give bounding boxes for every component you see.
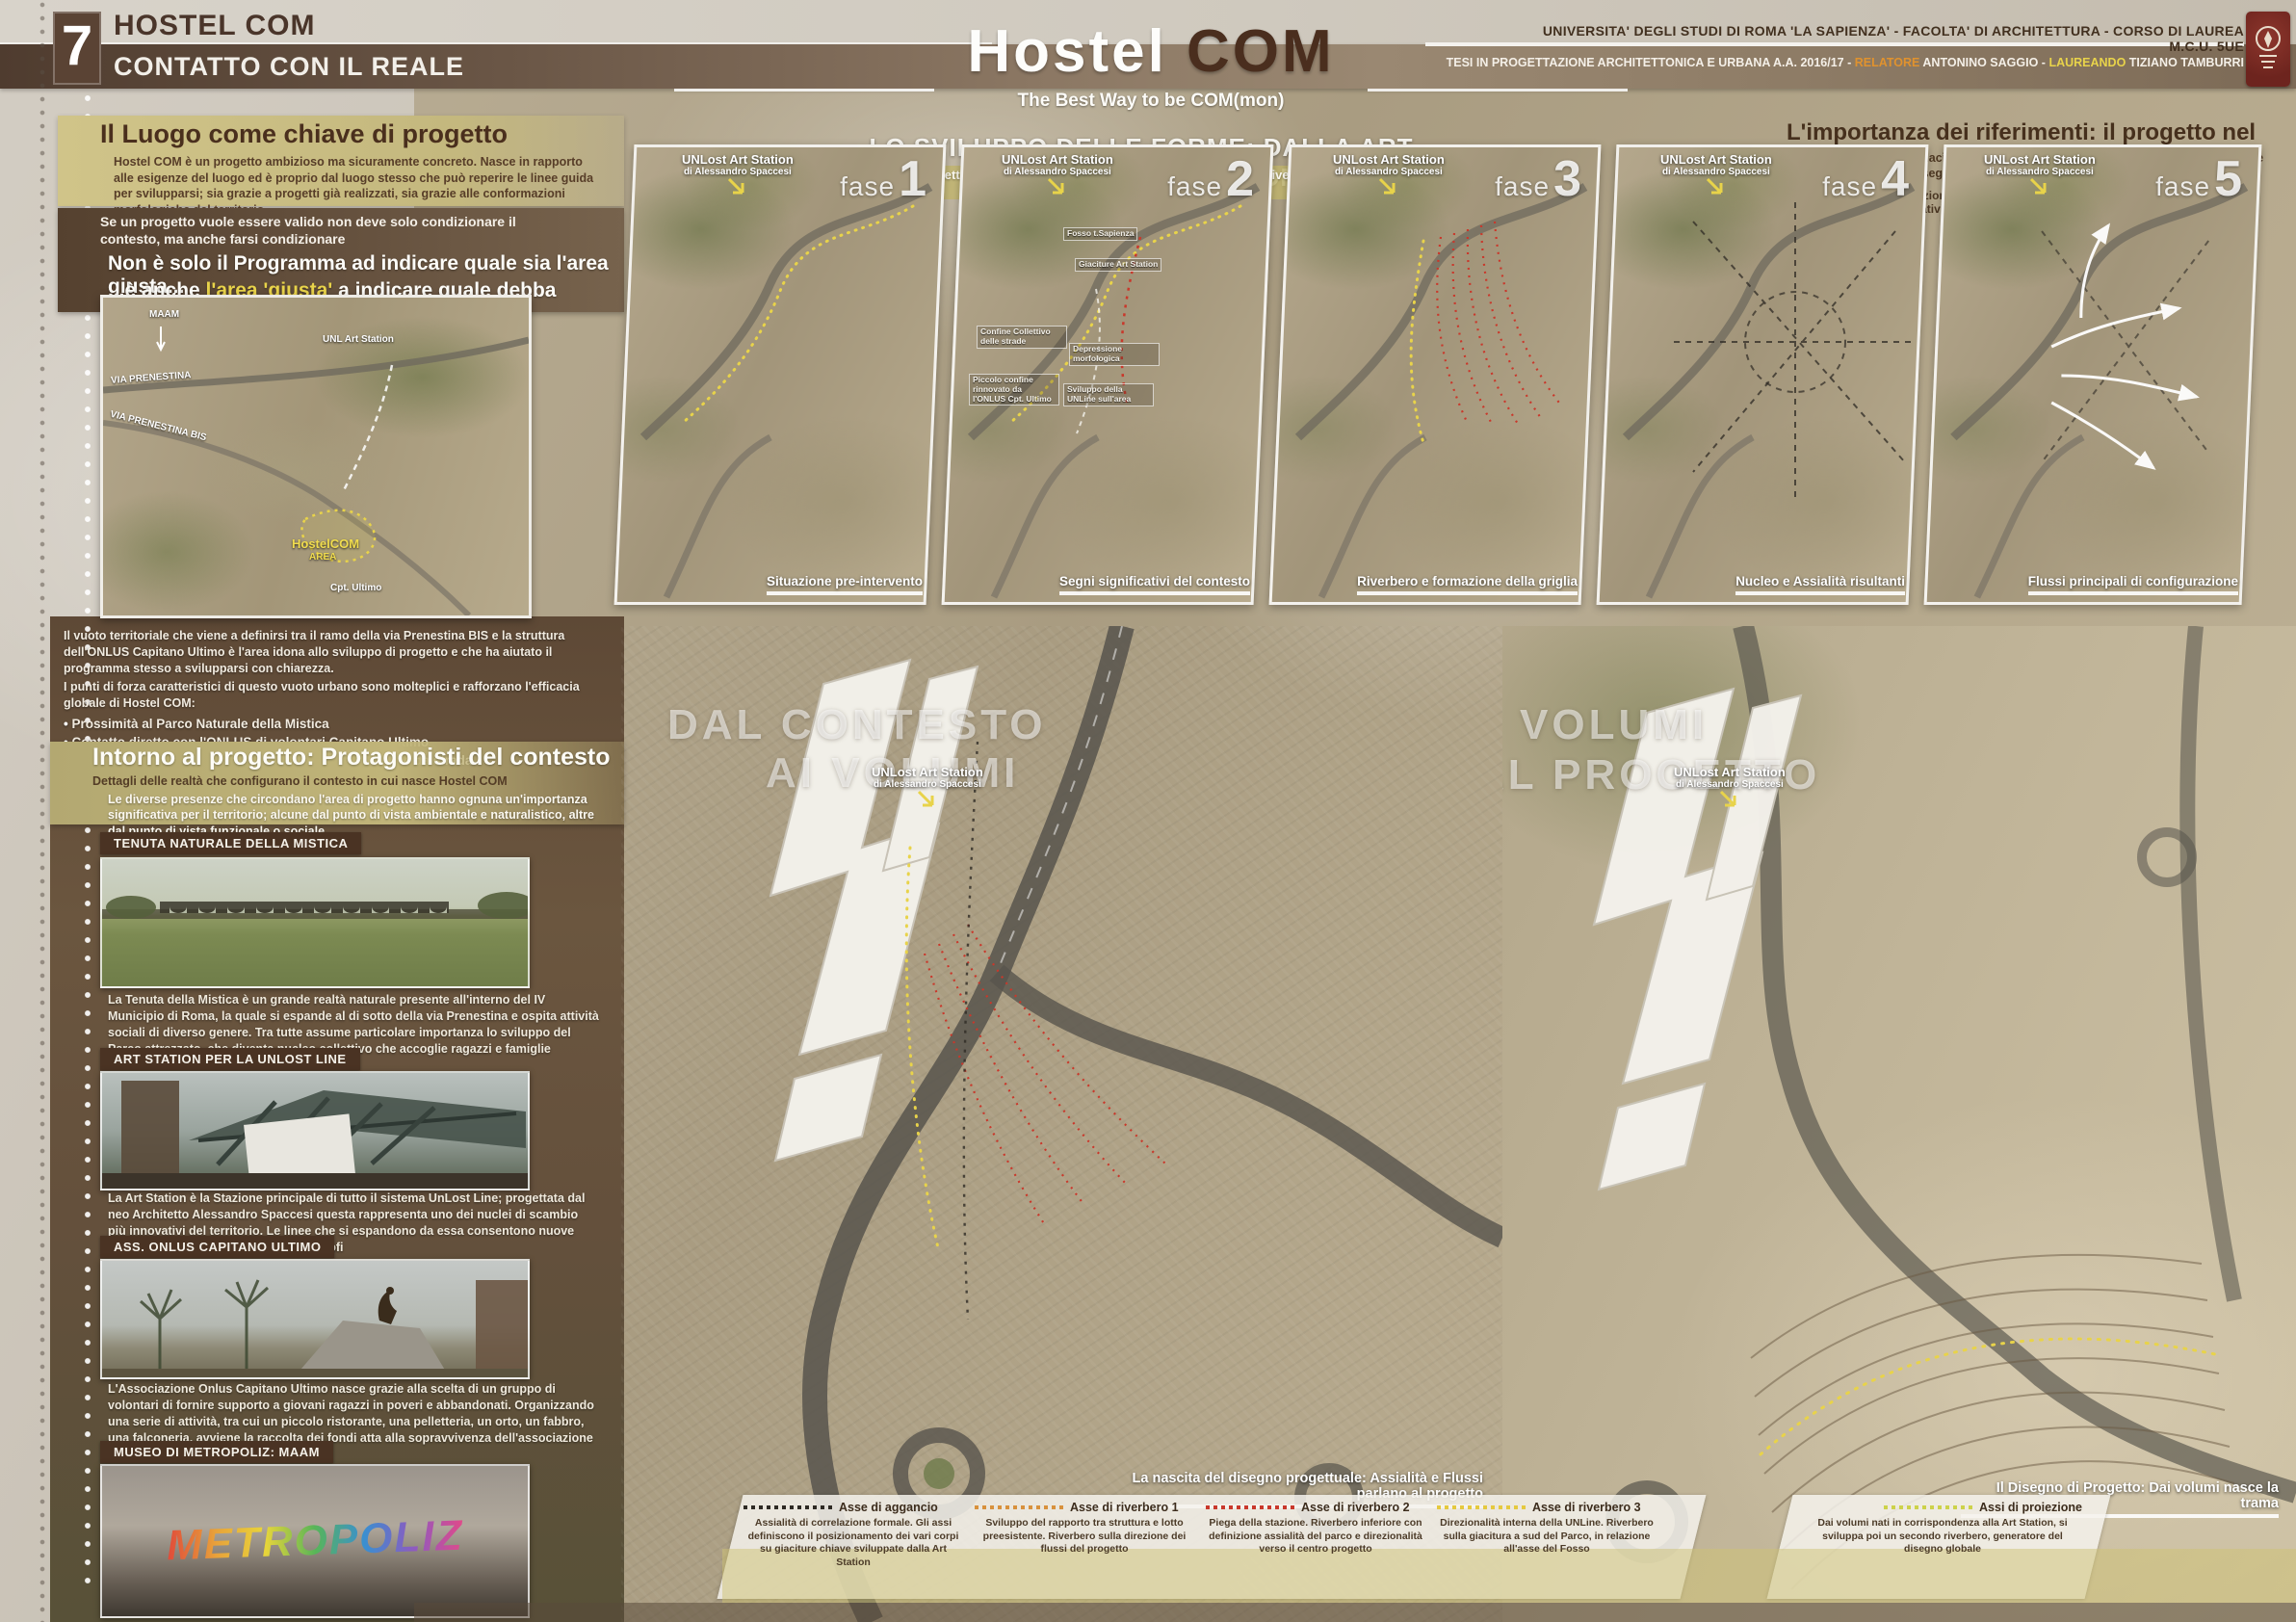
station-tag-line2: di Alessandro Spaccesi (1333, 167, 1445, 177)
legend-swatch-proiezione (1884, 1505, 1972, 1509)
vuoto-bullet: Prossimità al Parco Naturale della Misti… (64, 717, 329, 731)
bottom-dark-bar (414, 1603, 2296, 1622)
station-tag-line2: di Alessandro Spaccesi (872, 779, 983, 790)
ghost-text-dai-volumi: DAI VOLUMI (1502, 701, 1708, 749)
phase-5-caption: Flussi principali di configurazione (2028, 574, 2238, 595)
yellow-pointer-icon (915, 790, 940, 815)
station-tag-line2: di Alessandro Spaccesi (1984, 167, 2096, 177)
brand-title-white: Hostel (967, 18, 1166, 85)
card-maam-header: MUSEO DI METROPOLIZ: MAAM (100, 1441, 333, 1463)
site-context-map: MAAM UNL Art Station VIA PRENESTINA VIA … (100, 295, 532, 618)
card-mistica-header: TENUTA NATURALE DELLA MISTICA (100, 832, 361, 854)
relatore-label: RELATORE (1855, 56, 1920, 69)
intorno-heading: Intorno al progetto: Protagonisti del co… (92, 744, 611, 772)
bigmap-left-station-tag: UNLost Art Station di Alessandro Spacces… (872, 765, 983, 820)
phase-card-4: fase4 UNLost Art Station di Alessandro S… (1606, 144, 1918, 605)
phase-5-fase-label: fase5 (2155, 150, 2242, 208)
fase-word: fase (1495, 171, 1550, 201)
thesis-prefix: TESI IN PROGETTAZIONE ARCHITETTONICA E U… (1447, 56, 1844, 69)
station-tag-line1: UNLost Art Station (1660, 152, 1772, 167)
phase-1-fase-label: fase1 (840, 150, 926, 208)
station-tag-line2: di Alessandro Spaccesi (1674, 779, 1786, 790)
bigmap-context-to-volumes: DAL CONTESTO AI VOLUMI UNLost Art Statio… (621, 626, 1502, 1622)
legend-swatch-riverbero-3 (1437, 1505, 1526, 1509)
card-artstation-header: ART STATION PER LA UNLOST LINE (100, 1048, 360, 1070)
maam-graffiti-text: METROPOLIZ (166, 1512, 464, 1571)
phase-2-fase-label: fase2 (1167, 150, 1254, 208)
legend-title: Asse di riverbero 3 (1532, 1501, 1641, 1514)
phase-3-roads (1279, 144, 1591, 605)
phase-card-5: fase5 UNLost Art Station di Alessandro S… (1934, 144, 2252, 605)
fase-number: 2 (1226, 151, 1254, 207)
thesis-credits: TESI IN PROGETTAZIONE ARCHITETTONICA E U… (1445, 56, 2244, 69)
legend-item-riverbero-2: Asse di riverbero 2 Piega della stazione… (1206, 1501, 1425, 1557)
legend-desc: Dai volumi nati in corrispondenza alla A… (1803, 1517, 2082, 1557)
phase-2-note-confine: Confine Collettivo delle strade (977, 326, 1067, 349)
fase-number: 3 (1553, 151, 1581, 207)
fase-word: fase (840, 171, 895, 201)
mistica-landscape-icon (102, 859, 528, 986)
site-map-label-cpt-ultimo: Cpt. Ultimo (330, 583, 381, 593)
legend-desc: Assialità di correlazione formale. Gli a… (744, 1517, 963, 1570)
phase-card-2: fase2 UNLost Art Station di Alessandro S… (952, 144, 1264, 605)
sapienza-logo (2246, 12, 2290, 87)
card-maam-photo: METROPOLIZ (100, 1464, 530, 1618)
vuoto-paragraph-2: I punti di forza caratteristici di quest… (64, 679, 618, 712)
phase-card-1: fase1 UNLost Art Station di Alessandro S… (624, 144, 936, 605)
ghost-text-dal-contesto: DAL CONTESTO (667, 701, 1047, 749)
phase-2-note-fosso: Fosso t.Sapienza (1063, 227, 1137, 241)
site-map-label-hostelcom: HostelCOM (292, 536, 359, 551)
legend-swatch-riverbero-1 (975, 1505, 1063, 1509)
site-map-roads (103, 298, 529, 615)
phase-3-caption: Riverbero e formazione della griglia (1357, 574, 1578, 595)
legend-title: Asse di riverbero 2 (1301, 1501, 1410, 1514)
luogo-heading: Il Luogo come chiave di progetto (100, 119, 508, 149)
legend-desc: Piega della stazione. Riverbero inferior… (1206, 1517, 1425, 1557)
yellow-pointer-icon (1376, 177, 1401, 202)
phase-2-caption: Segni significativi del contesto (1059, 574, 1250, 595)
fase-word: fase (2155, 171, 2210, 201)
card-artstation-photo (100, 1071, 530, 1190)
station-tag-line1: UNLost Art Station (682, 152, 794, 167)
claim-intro: Se un progetto vuole essere valido non d… (100, 214, 553, 248)
legend-title: Asse di riverbero 1 (1070, 1501, 1179, 1514)
station-tag-line1: UNLost Art Station (1002, 152, 1113, 167)
legend-title: Assi di proiezione (1979, 1501, 2082, 1514)
legend-desc: Direzionalità interna della UNLine. Rive… (1437, 1517, 1657, 1557)
intorno-subtitle: Dettagli delle realtà che configurano il… (92, 774, 508, 788)
phase-1-station-tag: UNLost Art Station di Alessandro Spacces… (682, 152, 794, 207)
legend-title: Asse di aggancio (839, 1501, 938, 1514)
panel-number: 7 (53, 12, 101, 85)
site-map-label-area: AREA (309, 552, 336, 562)
yellow-pointer-icon (2027, 177, 2052, 202)
sapienza-emblem-icon (2252, 19, 2284, 79)
station-tag-line1: UNLost Art Station (872, 765, 983, 779)
phase-5-roads (1934, 144, 2252, 605)
tagline-rule-left (674, 89, 934, 92)
legend-item-riverbero-1: Asse di riverbero 1 Sviluppo del rapport… (975, 1501, 1194, 1557)
phase-4-roads (1606, 144, 1918, 605)
yellow-pointer-icon (725, 177, 750, 202)
yellow-pointer-icon (1704, 177, 1729, 202)
yellow-pointer-icon (1717, 790, 1742, 815)
station-tag-line2: di Alessandro Spaccesi (1002, 167, 1113, 177)
phase-card-3: fase3 UNLost Art Station di Alessandro S… (1279, 144, 1591, 605)
fase-number: 4 (1881, 151, 1909, 207)
station-tag-line1: UNLost Art Station (1674, 765, 1786, 779)
station-tag-line2: di Alessandro Spaccesi (1660, 167, 1772, 177)
card-onlus-caption: L'Associazione Onlus Capitano Ultimo nas… (108, 1381, 599, 1447)
brand-title: Hostel COM (944, 17, 1358, 86)
legend-item-riverbero-3: Asse di riverbero 3 Direzionalità intern… (1437, 1501, 1657, 1557)
station-tag-line2: di Alessandro Spaccesi (682, 167, 794, 177)
sep: - (1847, 56, 1851, 69)
tagline-rule-right (1368, 89, 1628, 92)
phase-3-station-tag: UNLost Art Station di Alessandro Spacces… (1333, 152, 1445, 207)
phase-5-station-tag: UNLost Art Station di Alessandro Spacces… (1984, 152, 2096, 207)
poster-board: 7 HOSTEL COM CONTATTO CON IL REALE Hoste… (0, 0, 2296, 1622)
phase-2-station-tag: UNLost Art Station di Alessandro Spacces… (1002, 152, 1113, 207)
panel-subtitle: CONTATTO CON IL REALE (114, 52, 464, 82)
artstation-structure-icon (102, 1073, 528, 1189)
onlus-falcon-scene-icon (102, 1261, 528, 1377)
fase-number: 5 (2214, 151, 2242, 207)
site-map-label-unl-art-station: UNL Art Station (323, 334, 394, 345)
left-edge-dotted-guide (39, 0, 46, 1622)
legend-swatch-riverbero-2 (1206, 1505, 1294, 1509)
relatore-name: ANTONINO SAGGIO (1922, 56, 2038, 69)
yellow-pointer-icon (1045, 177, 1070, 202)
card-mistica-photo (100, 857, 530, 988)
panel-title: HOSTEL COM (114, 10, 315, 42)
sep: - (2042, 56, 2046, 69)
phase-3-fase-label: fase3 (1495, 150, 1581, 208)
phase-1-roads (624, 144, 936, 605)
card-onlus-photo (100, 1259, 530, 1379)
station-tag-line1: UNLost Art Station (1984, 152, 2096, 167)
laureando-name: TIZIANO TAMBURRI (2129, 56, 2244, 69)
phase-2-note-piccolo-confine: Piccolo confine rinnovato da l'ONLUS Cpt… (969, 374, 1059, 405)
legend-item-proiezione: Assi di proiezione Dai volumi nati in co… (1803, 1501, 2082, 1557)
fase-word: fase (1822, 171, 1877, 201)
card-onlus-header: ASS. ONLUS CAPITANO ULTIMO (100, 1236, 334, 1258)
phase-1-caption: Situazione pre-intervento (767, 574, 923, 595)
bigmap-volumes-to-project: DAI VOLUMI AL PROGETTO UNLost Art Statio… (1502, 626, 2296, 1622)
bigmap-right-station-tag: UNLost Art Station di Alessandro Spacces… (1674, 765, 1786, 820)
university-line: UNIVERSITA' DEGLI STUDI DI ROMA 'LA SAPI… (1502, 23, 2244, 54)
phase-4-fase-label: fase4 (1822, 150, 1909, 208)
phase-4-station-tag: UNLost Art Station di Alessandro Spacces… (1660, 152, 1772, 207)
station-tag-line1: UNLost Art Station (1333, 152, 1445, 167)
site-map-label-maam: MAAM (149, 309, 179, 320)
phase-2-note-giaciture: Giaciture Art Station (1075, 258, 1161, 272)
brand-title-brown: COM (1187, 18, 1335, 85)
phase-2-note-sviluppo: Sviluppo della UNLine sull'area (1063, 383, 1154, 406)
left-column-dotted-guide (83, 92, 92, 1595)
brand-tagline: The Best Way to be COM(mon) (944, 91, 1358, 112)
legend-desc: Sviluppo del rapporto tra struttura e lo… (975, 1517, 1194, 1557)
fase-word: fase (1167, 171, 1222, 201)
legend-swatch-aggancio (744, 1505, 832, 1509)
fase-number: 1 (899, 151, 926, 207)
phase-2-note-depressione: Depressione morfologica (1069, 343, 1160, 366)
vuoto-paragraph-1: Il vuoto territoriale che viene a defini… (64, 628, 618, 677)
phase-4-caption: Nucleo e Assialità risultanti (1735, 574, 1905, 595)
laureando-label: LAUREANDO (2048, 56, 2126, 69)
legend-item-aggancio: Asse di aggancio Assialità di correlazio… (744, 1501, 963, 1570)
